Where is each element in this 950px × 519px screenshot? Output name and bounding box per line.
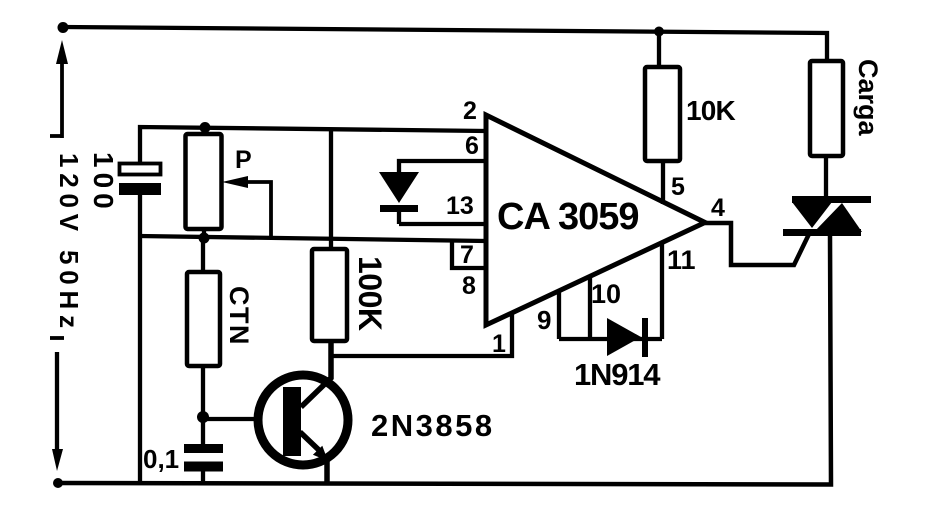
svg-text:CTN: CTN — [224, 286, 254, 346]
svg-text:2N3858: 2N3858 — [371, 408, 495, 443]
svg-text:10K: 10K — [686, 95, 736, 126]
svg-text:100: 100 — [88, 152, 119, 214]
svg-text:5: 5 — [671, 173, 685, 201]
svg-text:0,1: 0,1 — [143, 444, 179, 474]
svg-text:P: P — [235, 146, 252, 174]
svg-text:1N914: 1N914 — [574, 357, 661, 392]
svg-text:11: 11 — [667, 245, 696, 275]
svg-text:120V 50Hz: 120V 50Hz — [54, 153, 84, 334]
svg-text:9: 9 — [537, 305, 551, 335]
svg-text:13: 13 — [446, 192, 474, 220]
svg-text:10: 10 — [591, 279, 621, 309]
svg-text:Carga: Carga — [853, 59, 883, 137]
svg-text:2: 2 — [463, 97, 477, 125]
svg-text:7: 7 — [460, 241, 474, 269]
svg-text:100K: 100K — [352, 256, 388, 331]
svg-text:CA 3059: CA 3059 — [497, 196, 639, 238]
svg-text:8: 8 — [462, 272, 476, 300]
svg-text:4: 4 — [711, 194, 725, 222]
svg-text:1: 1 — [492, 330, 506, 358]
svg-text:6: 6 — [465, 132, 479, 160]
